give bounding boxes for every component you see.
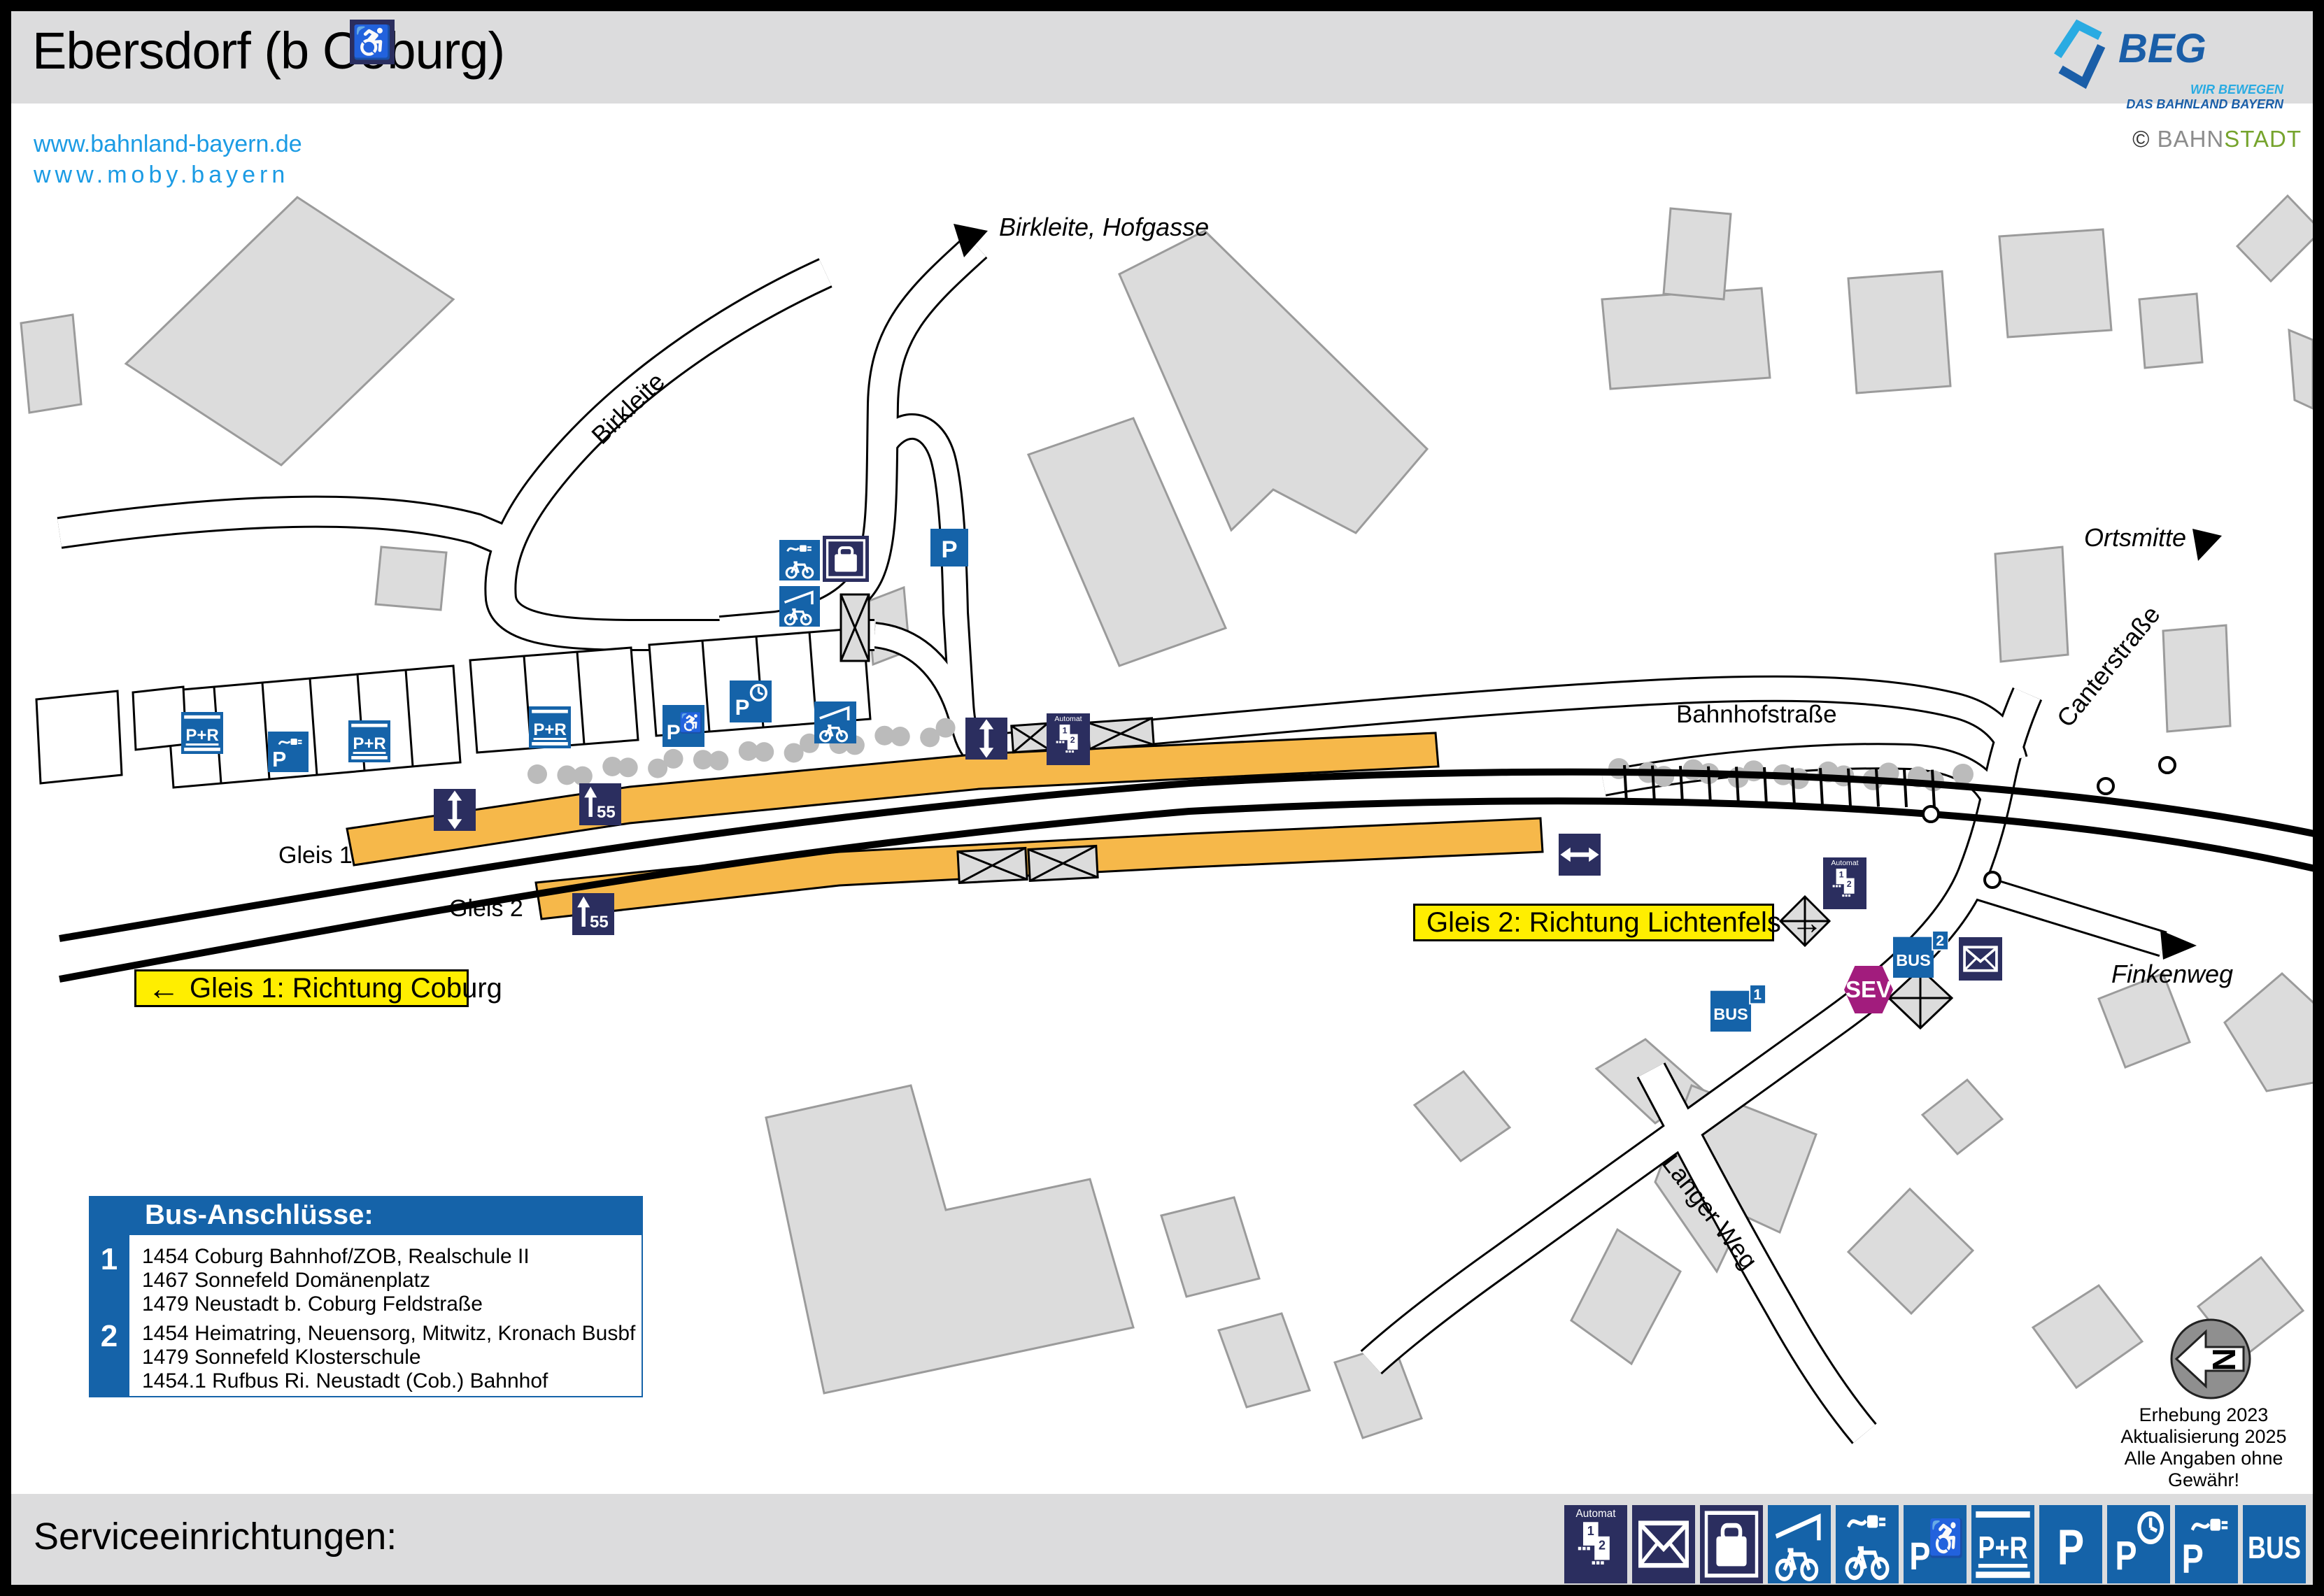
gleis1-direction-sign: ← Gleis 1: Richtung Coburg <box>134 969 469 1007</box>
park-and-ride-icon: P+R <box>181 712 223 754</box>
svg-text:BUS: BUS <box>2248 1530 2301 1565</box>
svg-text:1: 1 <box>1753 987 1762 1003</box>
track-label-gleis2: Gleis 2 <box>449 895 523 922</box>
ecar-charging-icon: P <box>2175 1505 2238 1583</box>
park-and-ride-icon: P+R <box>1971 1505 2034 1583</box>
platforms <box>347 733 1543 919</box>
survey-notes: Erhebung 2023 Aktualisierung 2025 Alle A… <box>2099 1404 2309 1491</box>
beg-tagline-1: WIR BEWEGEN <box>2043 83 2283 97</box>
svg-text:Automat: Automat <box>1831 859 1858 867</box>
parking-icon: P <box>2039 1505 2102 1583</box>
ebike-charging-icon <box>1836 1505 1899 1583</box>
svg-text:55: 55 <box>597 803 616 822</box>
ticket-machine-icon: Automat12 <box>1823 857 1866 909</box>
accessible-parking-icon: P♿ <box>1904 1505 1967 1583</box>
note-line: Erhebung 2023 <box>2099 1404 2309 1426</box>
svg-text:♿: ♿ <box>1928 1518 1964 1560</box>
destination-label-finkenweg: Finkenweg <box>2102 960 2242 989</box>
svg-text:1: 1 <box>1587 1523 1594 1538</box>
svg-text:1: 1 <box>1839 869 1844 879</box>
destination-label-ortsmitte: Ortsmitte <box>2053 523 2186 553</box>
accessible-parking-icon: P♿ <box>663 705 704 747</box>
svg-text:BUS: BUS <box>1713 1005 1748 1023</box>
wheelchair-icon: ♿ <box>350 20 395 64</box>
bus-route-1-number: 1 <box>89 1242 129 1277</box>
shelters <box>841 594 1952 1028</box>
mailbox-icon <box>1959 937 2002 981</box>
credit: © BAHNSTADT <box>2092 126 2302 152</box>
station-map-page: N Birkleite Bahnhofstraße Canterstraße L… <box>0 0 2324 1596</box>
bus-stop-1-icon: BUS1 <box>1710 985 1766 1032</box>
link-bahnland-bayern[interactable]: www.bahnland-bayern.de <box>34 129 302 159</box>
svg-text:P+R: P+R <box>353 734 385 753</box>
svg-text:P: P <box>2057 1519 2084 1575</box>
svg-text:P+R: P+R <box>1978 1530 2027 1565</box>
svg-text:P: P <box>667 721 681 744</box>
platform-height-55-icon: 55 <box>579 783 621 825</box>
footer-label: Serviceeinrichtungen: <box>34 1515 397 1558</box>
street-label-bahnhofstrasse: Bahnhofstraße <box>1676 701 1837 729</box>
svg-text:P: P <box>272 748 286 771</box>
svg-text:P: P <box>2182 1537 2204 1582</box>
svg-text:P+R: P+R <box>533 720 566 739</box>
svg-text:Automat: Automat <box>1054 715 1082 723</box>
svg-text:♿: ♿ <box>679 711 703 734</box>
bus-route-line: 1467 Sonnefeld Domänenplatz <box>142 1269 430 1292</box>
ticket-machine-icon: Automat12 <box>1047 713 1090 765</box>
ebike-charging-icon <box>779 540 820 580</box>
barrier-free-access-icon <box>1559 834 1601 876</box>
svg-text:P: P <box>941 536 957 563</box>
credit-stadt: STADT <box>2224 126 2302 152</box>
bus-route-line: 1454.1 Rufbus Ri. Neustadt (Cob.) Bahnho… <box>142 1369 548 1393</box>
bus-route-line: 1479 Sonnefeld Klosterschule <box>142 1346 421 1369</box>
gleis1-direction-text: Gleis 1: Richtung Coburg <box>190 973 502 1004</box>
arrow-ortsmitte <box>2192 529 2222 561</box>
svg-text:BUS: BUS <box>1896 951 1930 969</box>
left-arrow-icon: ← <box>148 974 180 1002</box>
covered-bike-parking-icon <box>779 586 820 627</box>
svg-text:1: 1 <box>1063 725 1068 735</box>
platform-height-55-icon: 55 <box>572 893 614 935</box>
arrow-finkenweg <box>2160 930 2197 960</box>
track-label-gleis1: Gleis 1 <box>278 842 353 869</box>
svg-text:P+R: P+R <box>185 726 218 745</box>
parking-icon: P <box>930 529 968 567</box>
covered-bike-parking-icon <box>1768 1505 1831 1583</box>
svg-text:P: P <box>1909 1534 1930 1578</box>
park-and-ride-icon: P+R <box>529 706 571 748</box>
svg-text:P: P <box>2115 1533 2137 1579</box>
north-letter: N <box>2206 1348 2242 1371</box>
luggage-locker-icon <box>823 536 869 582</box>
destination-label-birkleite-hofgasse: Birkleite, Hofgasse <box>999 213 1209 242</box>
luggage-locker-icon <box>1700 1505 1763 1583</box>
gleis2-direction-sign: Gleis 2: Richtung Lichtenfels → <box>1413 904 1774 941</box>
barrier-free-access-icon <box>434 789 476 831</box>
bus-route-line: 1479 Neustadt b. Coburg Feldstraße <box>142 1292 483 1316</box>
short-term-parking-icon: P <box>730 681 772 722</box>
covered-bike-parking-icon <box>814 701 856 743</box>
mailbox-icon <box>1632 1505 1695 1583</box>
bus-legend-header: Bus-Anschlüsse: <box>89 1196 643 1234</box>
right-arrow-icon: → <box>1791 909 1823 936</box>
bus-stop-2-icon: BUS2 <box>1893 931 1948 978</box>
bus-legend: Bus-Anschlüsse: 1 2 1454 Coburg Bahnhof/… <box>89 1196 643 1397</box>
bus-icon: BUS <box>2243 1505 2306 1583</box>
north-arrow: N <box>2171 1320 2250 1398</box>
svg-text:55: 55 <box>590 913 609 932</box>
beg-tagline-2: DAS BAHNLAND BAYERN <box>2043 97 2283 112</box>
barrier-free-access-icon <box>965 718 1007 760</box>
svg-text:2: 2 <box>1936 933 1944 949</box>
bus-route-line: 1454 Coburg Bahnhof/ZOB, Realschule II <box>142 1245 530 1269</box>
svg-text:P: P <box>735 695 750 720</box>
credit-bahn: BAHN <box>2158 126 2225 152</box>
park-and-ride-icon: P+R <box>348 720 390 762</box>
ecar-charging-icon: P <box>268 732 309 772</box>
link-moby-bayern[interactable]: www.moby.bayern <box>34 159 302 190</box>
svg-text:2: 2 <box>1070 735 1075 745</box>
note-line: Alle Angaben ohne Gewähr! <box>2099 1448 2309 1491</box>
bus-route-line: 1454 Heimatring, Neuensorg, Mitwitz, Kro… <box>142 1322 635 1346</box>
bus-route-2-number: 2 <box>89 1319 129 1354</box>
gleis2-direction-text: Gleis 2: Richtung Lichtenfels <box>1426 907 1781 939</box>
short-term-parking-icon: P <box>2107 1505 2170 1583</box>
note-line: Aktualisierung 2025 <box>2099 1426 2309 1448</box>
beg-logo: BEG WIR BEWEGEN DAS BAHNLAND BAYERN <box>2043 14 2313 104</box>
bus-legend-title: Bus-Anschlüsse: <box>145 1199 374 1230</box>
svg-text:2: 2 <box>1599 1537 1606 1552</box>
page-title: Ebersdorf (b Coburg) <box>32 21 504 80</box>
beg-wordmark: BEG <box>2118 25 2206 72</box>
credit-symbol: © <box>2132 126 2150 152</box>
ticket-machine-icon: Automat12 <box>1564 1505 1627 1583</box>
svg-text:2: 2 <box>1847 879 1852 889</box>
svg-text:Automat: Automat <box>1576 1508 1617 1520</box>
